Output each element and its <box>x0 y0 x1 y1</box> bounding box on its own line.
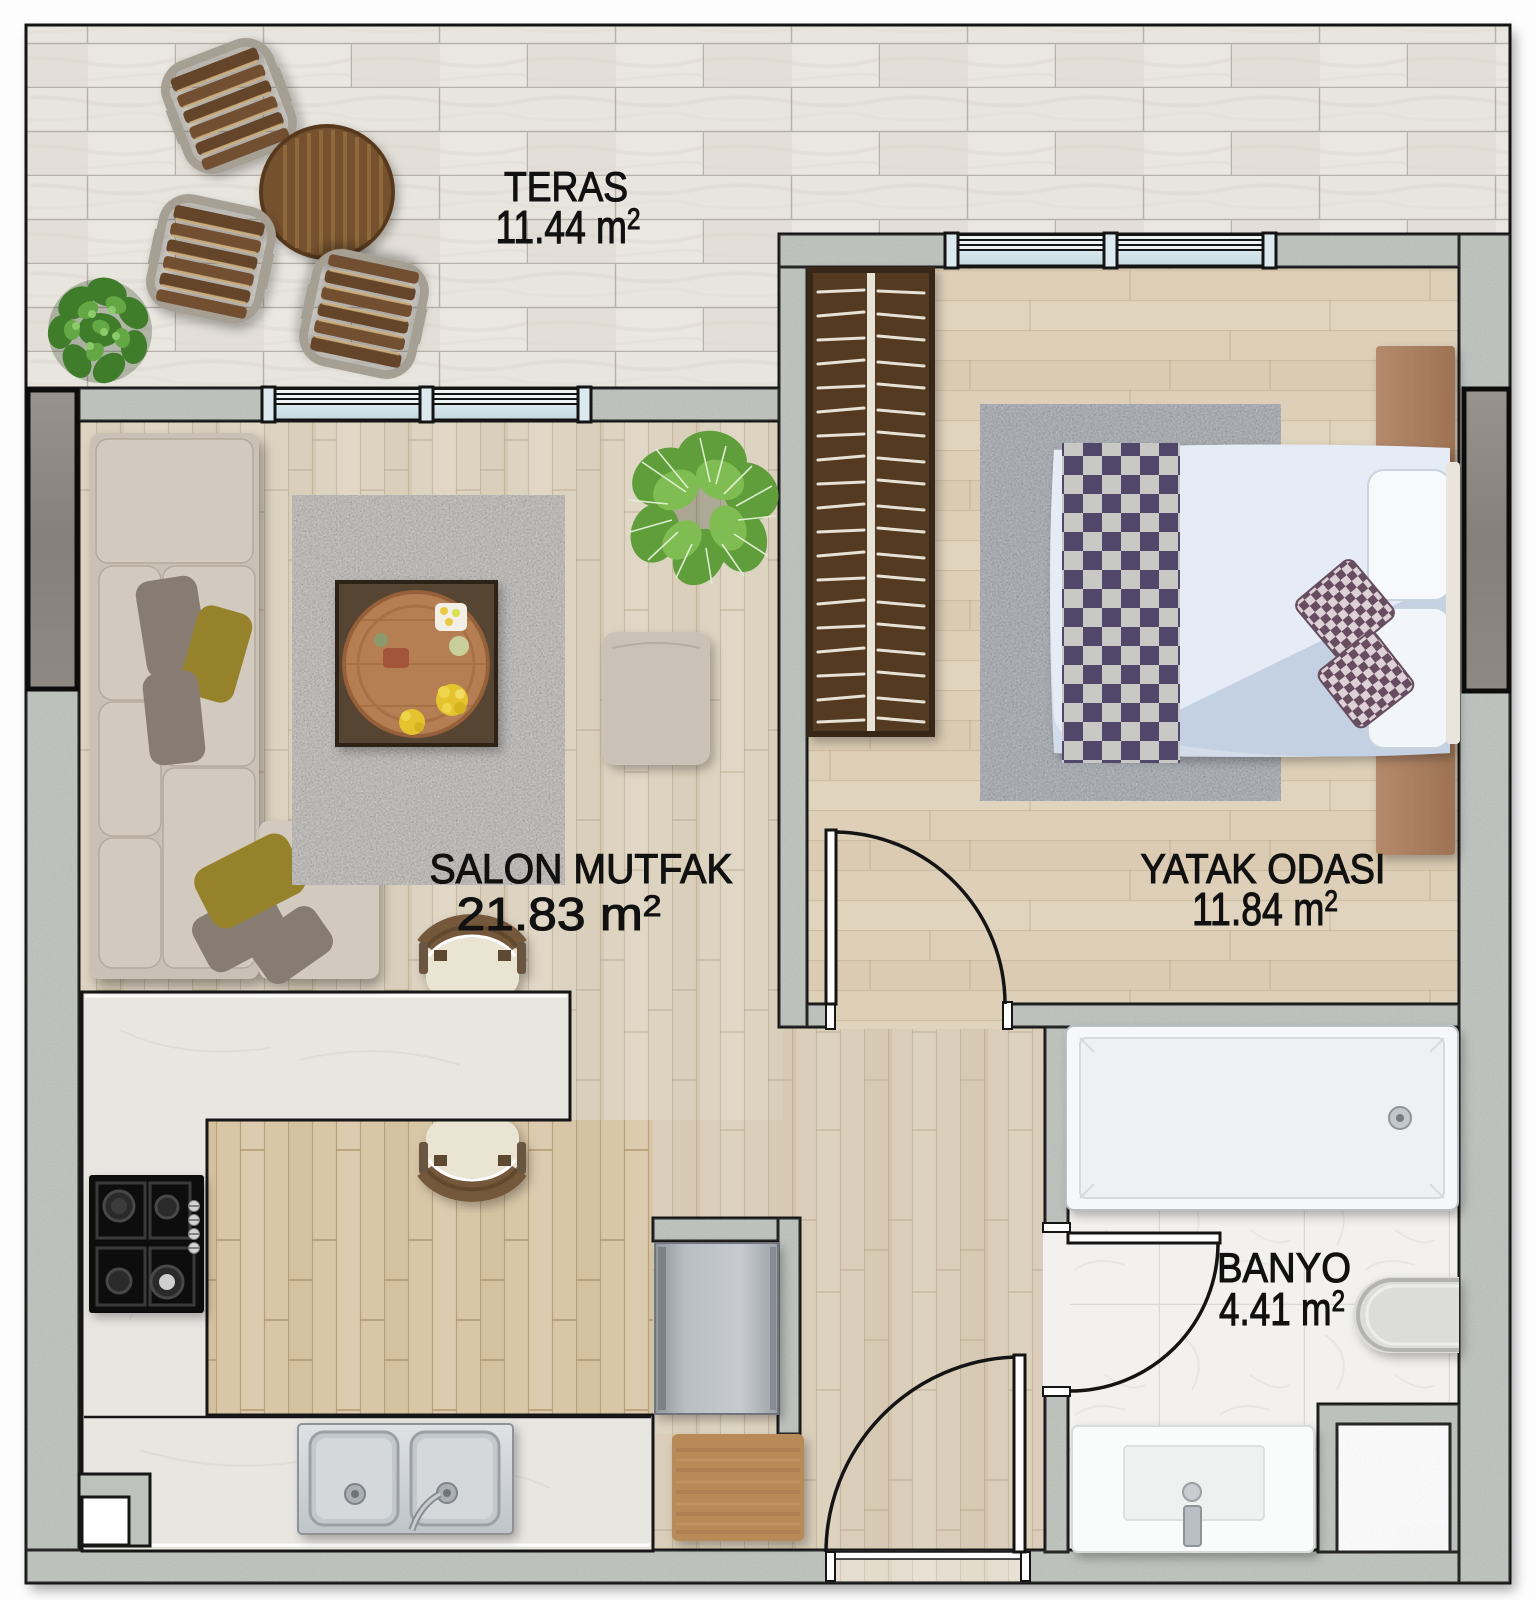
svg-text:SALON MUTFAK: SALON MUTFAK <box>430 845 733 892</box>
svg-text:4.41 m2: 4.41 m2 <box>1219 1283 1345 1335</box>
svg-text:11.84 m2: 11.84 m2 <box>1192 883 1338 935</box>
svg-text:21.83 m2: 21.83 m2 <box>457 888 662 940</box>
svg-text:11.44 m2: 11.44 m2 <box>496 201 641 253</box>
